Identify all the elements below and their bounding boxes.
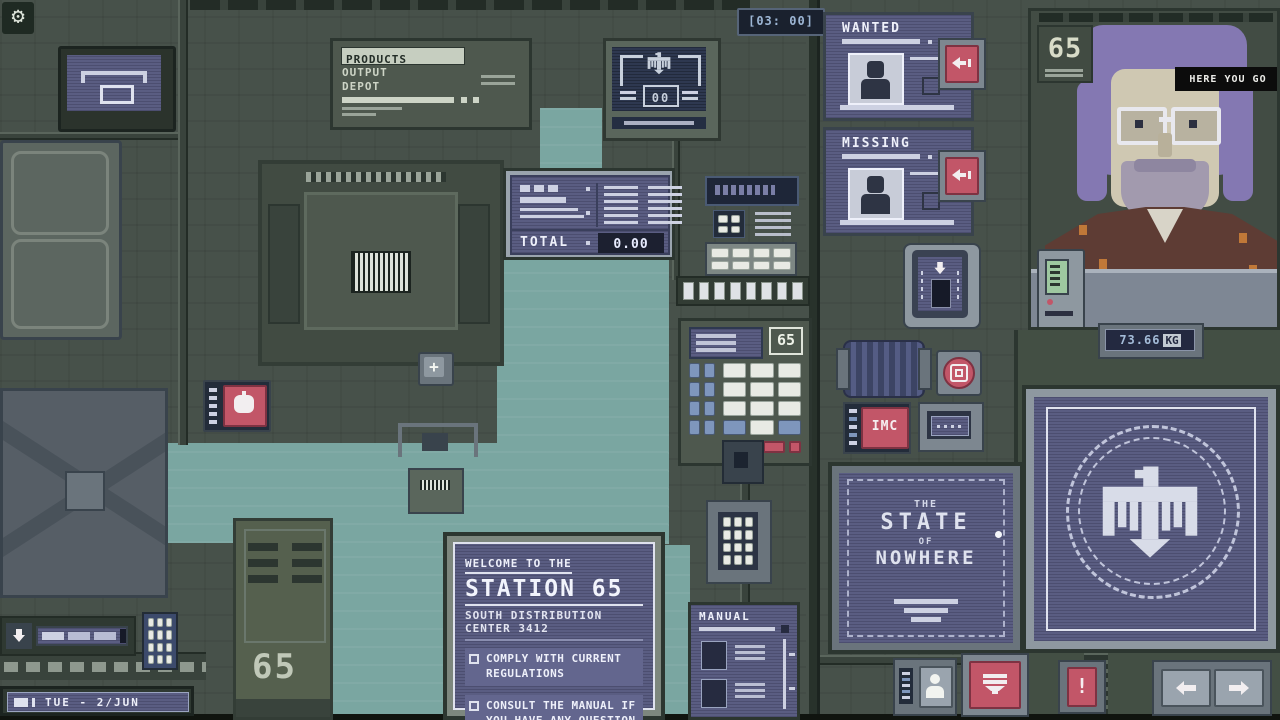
vent-lines xyxy=(481,75,515,78)
keypad-keys[interactable] xyxy=(689,363,801,435)
key[interactable] xyxy=(753,248,771,258)
add-button[interactable]: + xyxy=(418,352,454,386)
key[interactable] xyxy=(148,655,154,664)
key[interactable] xyxy=(157,655,163,664)
total-screen: TOTAL 0.00 xyxy=(510,175,670,255)
hatch-core xyxy=(422,433,448,451)
display-text xyxy=(715,185,775,195)
products-panel: PRODUCTS OUTPUT DEPOT xyxy=(330,38,532,130)
ticket-machine[interactable] xyxy=(1037,249,1085,330)
key[interactable] xyxy=(734,543,742,553)
underline xyxy=(842,39,920,44)
toggle-switch[interactable] xyxy=(683,282,694,300)
crate-panel xyxy=(0,388,168,598)
progress-cap xyxy=(120,629,126,643)
traveller-hair-side xyxy=(1223,81,1253,201)
tab-products-label: PRODUCTS xyxy=(342,53,407,66)
micro-text xyxy=(1045,69,1083,72)
slot-screen xyxy=(918,257,962,311)
stamp-button[interactable] xyxy=(961,653,1029,717)
down-arrow-icon xyxy=(934,262,946,275)
key[interactable] xyxy=(723,517,731,527)
code-screen xyxy=(931,416,969,436)
key[interactable] xyxy=(689,420,700,435)
missing-photo[interactable] xyxy=(848,168,904,220)
indicator-square xyxy=(473,97,479,103)
welcome-title: STATION 65 xyxy=(465,576,643,606)
key[interactable] xyxy=(689,382,700,397)
label-lines xyxy=(755,212,791,215)
key[interactable] xyxy=(750,363,773,378)
ticket-light xyxy=(1047,299,1053,305)
emblem-panel xyxy=(1022,385,1280,653)
key[interactable] xyxy=(745,543,753,553)
manual-page-thumb[interactable] xyxy=(701,679,727,708)
coat-spot xyxy=(1079,225,1087,235)
key[interactable] xyxy=(723,401,746,416)
toggle-switch[interactable] xyxy=(714,282,725,300)
key[interactable] xyxy=(753,261,771,271)
chip-lines xyxy=(209,388,217,392)
product-stamp-button[interactable] xyxy=(203,380,271,432)
paging-buttons xyxy=(1152,660,1272,716)
counter-nameplate xyxy=(612,117,706,129)
key[interactable] xyxy=(166,655,172,664)
total-row: TOTAL 0.00 xyxy=(512,229,668,255)
micro-text xyxy=(342,113,376,116)
clock-display: [03: 00] xyxy=(737,8,825,36)
toggle-switch[interactable] xyxy=(746,282,757,300)
keypad-number: 65 xyxy=(769,327,803,355)
terminal-keys[interactable] xyxy=(705,242,797,276)
locker: 65 xyxy=(233,518,333,720)
locker-number: 65 xyxy=(252,647,297,687)
total-value-box: 0.00 xyxy=(598,233,664,253)
dot xyxy=(928,40,932,44)
wall-box xyxy=(722,440,764,484)
terminal xyxy=(703,172,803,277)
teeth-strip xyxy=(306,172,446,182)
key[interactable] xyxy=(711,261,729,271)
key[interactable] xyxy=(778,401,801,416)
keypad-number-value: 65 xyxy=(777,331,795,349)
micro-text xyxy=(624,121,694,125)
eagle-icon xyxy=(644,49,674,75)
booth-number-value: 65 xyxy=(1048,33,1083,64)
person-icon-body xyxy=(926,686,944,698)
wanted-title: WANTED xyxy=(842,21,901,36)
toggle-switch[interactable] xyxy=(730,282,741,300)
progress-display xyxy=(36,626,128,646)
exclamation-icon: ! xyxy=(1076,674,1088,698)
side-keys[interactable] xyxy=(689,363,715,435)
indicator-square xyxy=(461,97,467,103)
bullet-text: CONSULT THE MANUAL IF YOU HAVE ANY QUEST… xyxy=(486,699,639,720)
bottom-bar xyxy=(840,220,954,225)
welcome-bullet-1: COMPLY WITH CURRENT REGULATIONS xyxy=(465,648,643,686)
prev-page-button[interactable] xyxy=(1161,669,1211,707)
pipe xyxy=(0,132,178,140)
bullet-text: COMPLY WITH CURRENT REGULATIONS xyxy=(486,652,639,682)
depot-label: DEPOT xyxy=(342,80,380,93)
key[interactable] xyxy=(723,382,746,397)
monitor xyxy=(58,46,176,132)
dash xyxy=(682,91,698,94)
micro-text xyxy=(342,107,402,110)
key[interactable] xyxy=(732,261,750,271)
key[interactable] xyxy=(148,643,154,652)
divider xyxy=(596,183,598,227)
product-stamp-face xyxy=(223,385,267,427)
dot xyxy=(928,155,932,159)
arrow-box xyxy=(6,623,32,649)
welcome-subtitle1: SOUTH DISTRIBUTION xyxy=(465,609,643,622)
flourish-bars xyxy=(904,608,948,613)
weight-unit: KG xyxy=(1163,334,1180,347)
locker-kickplate xyxy=(236,699,330,717)
corner-square xyxy=(781,625,789,633)
date-screen: TUE - 2/JUN xyxy=(7,692,189,712)
call-traveller-button[interactable] xyxy=(893,658,957,716)
person-icon xyxy=(930,674,940,684)
state-screen: THE STATE OF NOWHERE xyxy=(839,473,1013,643)
silhouette-head xyxy=(867,61,884,78)
pupil xyxy=(1135,120,1143,128)
key[interactable] xyxy=(734,517,742,527)
key[interactable] xyxy=(711,248,729,258)
main-keys[interactable] xyxy=(723,363,801,435)
glasses-right xyxy=(1171,107,1221,145)
glint-dot xyxy=(995,531,1002,538)
add-button-face: + xyxy=(424,357,444,377)
target-icon-core xyxy=(955,369,963,377)
plus-icon: + xyxy=(429,357,439,376)
key[interactable] xyxy=(731,215,741,223)
toggle-switch[interactable] xyxy=(699,282,710,300)
ui-bar xyxy=(520,208,578,211)
counter-booth: 00 xyxy=(603,38,721,141)
key[interactable] xyxy=(745,530,753,540)
eagle-icon xyxy=(1096,453,1204,561)
document-slot[interactable] xyxy=(903,243,981,329)
key[interactable] xyxy=(148,618,154,627)
clamp xyxy=(268,204,300,324)
key[interactable] xyxy=(157,630,163,639)
key[interactable] xyxy=(704,363,715,378)
weight-value: 73.66 xyxy=(1119,333,1160,347)
key[interactable] xyxy=(778,420,801,435)
bottom-bar xyxy=(840,105,954,110)
silhouette-head xyxy=(867,176,884,193)
wall-box-core xyxy=(734,452,748,468)
key[interactable] xyxy=(718,226,728,234)
bullet-icon xyxy=(469,701,479,711)
welcome-bullet-2: CONSULT THE MANUAL IF YOU HAVE ANY QUEST… xyxy=(465,695,643,720)
intercom-face xyxy=(943,357,975,389)
hatch-outline xyxy=(11,151,109,235)
scan-plate xyxy=(304,192,458,330)
tick-column xyxy=(957,269,959,299)
scanner-machine xyxy=(258,160,504,366)
barcode[interactable] xyxy=(351,251,411,293)
key[interactable] xyxy=(148,630,154,639)
wanted-prev-face xyxy=(945,45,979,83)
key[interactable] xyxy=(773,248,791,258)
clock-value: [03: 00] xyxy=(748,14,814,28)
key[interactable] xyxy=(763,441,785,453)
welcome-intro: WELCOME TO THE xyxy=(465,557,572,574)
date-bar: TUE - 2/JUN xyxy=(0,686,194,716)
flourish-bars xyxy=(894,599,958,604)
slot-opening xyxy=(931,279,951,308)
manual-panel[interactable]: MANUAL xyxy=(688,602,800,720)
date-value: TUE - 2/JUN xyxy=(45,696,140,709)
arrow-left-icon xyxy=(951,168,973,182)
screen-graphic xyxy=(81,71,147,75)
welcome-screen: WELCOME TO THE STATION 65 SOUTH DISTRIBU… xyxy=(453,542,655,710)
key[interactable] xyxy=(745,517,753,527)
key[interactable] xyxy=(734,530,742,540)
dot xyxy=(586,187,590,191)
cabinet xyxy=(0,140,122,340)
floor-area xyxy=(662,545,690,720)
speech-text: HERE YOU GO xyxy=(1189,74,1266,85)
missing-prev-button[interactable] xyxy=(938,150,986,202)
arrow-right-icon xyxy=(1229,681,1249,695)
traveller-window: 65 HERE YOU GO xyxy=(1028,8,1280,330)
mini-keypad[interactable] xyxy=(713,210,745,238)
underline xyxy=(842,154,920,159)
toggle-switch[interactable] xyxy=(777,282,788,300)
key[interactable] xyxy=(704,382,715,397)
apple-icon-stem xyxy=(242,391,246,397)
key[interactable] xyxy=(732,248,750,258)
welcome-poster: WELCOME TO THE STATION 65 SOUTH DISTRIBU… xyxy=(443,532,665,720)
screen-graphic xyxy=(143,71,147,83)
manual-scrollbar[interactable] xyxy=(783,639,786,709)
date-marker xyxy=(14,698,28,707)
total-value: 0.00 xyxy=(613,237,648,252)
glasses-bridge xyxy=(1159,117,1171,122)
key[interactable] xyxy=(723,555,731,565)
traveller-nose xyxy=(1158,133,1172,157)
imc-module: IMC xyxy=(843,402,911,454)
dash xyxy=(620,91,636,94)
key[interactable] xyxy=(689,401,700,416)
imc-label: IMC xyxy=(872,419,898,434)
intercom-button[interactable] xyxy=(936,350,982,396)
bracket xyxy=(678,55,701,86)
tab-products[interactable]: PRODUCTS xyxy=(341,47,465,65)
key[interactable] xyxy=(789,441,801,453)
key[interactable] xyxy=(734,555,742,565)
key[interactable] xyxy=(166,643,172,652)
key[interactable] xyxy=(166,630,172,639)
vent-strip xyxy=(1039,13,1273,22)
arrow-left-icon xyxy=(951,56,973,70)
manual-title: MANUAL xyxy=(699,610,751,623)
call-traveller-face xyxy=(919,666,953,708)
screen-graphic xyxy=(81,71,85,83)
motor-cap xyxy=(918,348,932,390)
dot xyxy=(586,241,590,245)
progress-segment xyxy=(42,632,64,640)
down-arrow-icon xyxy=(13,629,25,643)
key[interactable] xyxy=(718,215,728,223)
key[interactable] xyxy=(704,420,715,435)
alert-face: ! xyxy=(1067,667,1097,707)
output-label: OUTPUT xyxy=(342,66,388,79)
key[interactable] xyxy=(704,401,715,416)
dots xyxy=(937,425,940,428)
key[interactable] xyxy=(731,226,741,234)
hatch-bracket xyxy=(398,423,478,457)
key[interactable] xyxy=(166,618,172,627)
traveller-mustache xyxy=(1134,159,1196,172)
settings-button[interactable]: ⚙ xyxy=(2,2,34,34)
total-label: TOTAL xyxy=(520,235,569,250)
clamp xyxy=(458,204,490,324)
key[interactable] xyxy=(723,363,746,378)
gear-icon: ⚙ xyxy=(11,4,24,29)
underline xyxy=(699,627,775,631)
key[interactable] xyxy=(773,261,791,271)
ticket-pixels xyxy=(1050,265,1060,268)
thumb-lines xyxy=(735,683,765,686)
code-display-inner xyxy=(927,411,971,439)
screen-lines xyxy=(696,334,736,338)
key[interactable] xyxy=(723,530,731,540)
toggle-switch[interactable] xyxy=(761,282,772,300)
terminal-display xyxy=(705,176,799,206)
total-display: TOTAL 0.00 xyxy=(503,168,675,260)
pupil xyxy=(1189,120,1197,128)
imc-button[interactable]: IMC xyxy=(861,407,909,449)
ticket-slot xyxy=(1045,311,1073,316)
wall-keypad[interactable] xyxy=(706,500,772,584)
slot-inner xyxy=(912,250,968,318)
code-display xyxy=(918,402,984,452)
tick-column xyxy=(921,269,923,299)
speech-bubble: HERE YOU GO xyxy=(1175,67,1280,91)
monitor-screen xyxy=(67,55,161,111)
ui-bar xyxy=(520,185,530,192)
key[interactable] xyxy=(750,401,773,416)
micro-text xyxy=(902,672,910,675)
toggle-switch[interactable] xyxy=(792,282,803,300)
progress-bar xyxy=(342,97,454,103)
alert-button[interactable]: ! xyxy=(1058,660,1106,714)
scale-screen: 73.66 KG xyxy=(1105,329,1195,351)
bracket xyxy=(620,55,643,86)
hatch-outline xyxy=(11,239,109,329)
bullet-icon xyxy=(469,654,479,664)
key[interactable] xyxy=(778,382,801,397)
state-poster: THE STATE OF NOWHERE xyxy=(828,462,1024,654)
side-keypad[interactable] xyxy=(142,612,178,670)
date-tick xyxy=(32,698,35,707)
ledger-lines xyxy=(604,186,638,189)
arrow-left-icon xyxy=(1176,681,1196,695)
key[interactable] xyxy=(157,618,163,627)
booth-number-sign: 65 xyxy=(1037,25,1093,83)
key[interactable] xyxy=(750,382,773,397)
apple-icon xyxy=(234,395,254,413)
chip-lines xyxy=(899,668,913,704)
wall-keypad-keys[interactable] xyxy=(718,512,758,570)
key[interactable] xyxy=(723,543,731,553)
hatch-stand xyxy=(408,468,464,514)
game-screen: ⚙ PRODUCTS OUTPUT DEPOT [03: 00] xyxy=(0,0,1280,720)
emblem-screen xyxy=(1034,397,1268,641)
silhouette-body xyxy=(861,194,890,214)
key[interactable] xyxy=(750,420,773,435)
key[interactable] xyxy=(723,420,746,435)
key[interactable] xyxy=(778,363,801,378)
traveller-hair-side xyxy=(1077,81,1107,201)
deco-border xyxy=(847,479,1005,637)
key[interactable] xyxy=(157,643,163,652)
pipe xyxy=(178,0,188,445)
wanted-prev-button[interactable] xyxy=(938,38,986,90)
key[interactable] xyxy=(689,363,700,378)
screen-graphic xyxy=(100,85,134,104)
dispenser-device xyxy=(0,616,136,656)
crate-core xyxy=(65,471,105,511)
toggle-row[interactable] xyxy=(676,276,810,306)
missing-prev-face xyxy=(945,157,979,195)
wanted-photo[interactable] xyxy=(848,53,904,105)
keypad-screen xyxy=(689,327,763,359)
queue-counter-value: 00 xyxy=(652,91,670,105)
queue-counter: 00 xyxy=(643,85,679,107)
stamp-face xyxy=(969,661,1021,709)
vent-strip xyxy=(190,0,750,10)
stamp-icon xyxy=(981,672,1009,696)
silhouette-body xyxy=(861,79,890,99)
chip-lines xyxy=(849,409,857,413)
missing-title: MISSING xyxy=(842,136,911,151)
locker-panel-line xyxy=(244,529,326,643)
manual-page-thumb[interactable] xyxy=(701,641,727,670)
motor-cap xyxy=(836,348,850,390)
welcome-subtitle2: CENTER 3412 xyxy=(465,622,643,641)
ui-bar xyxy=(520,215,584,218)
next-page-button[interactable] xyxy=(1214,669,1264,707)
ui-bar xyxy=(520,197,566,203)
mini-barcode xyxy=(420,480,450,490)
flourish-bars xyxy=(911,617,941,622)
motor xyxy=(843,340,925,398)
ticket-screen xyxy=(1045,259,1069,295)
scroll-tick xyxy=(789,653,795,656)
scale-display: 73.66 KG xyxy=(1098,323,1204,359)
thumb-lines xyxy=(735,645,765,648)
counter-screen: 00 xyxy=(612,47,706,111)
key[interactable] xyxy=(745,555,753,565)
